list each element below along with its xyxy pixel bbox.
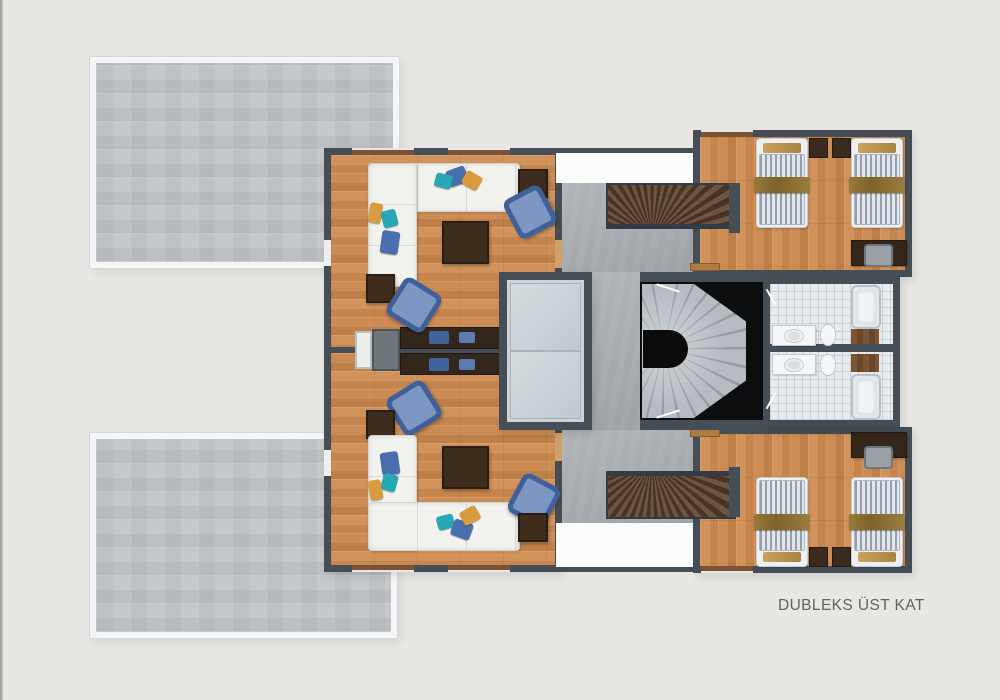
door-opening xyxy=(555,240,562,268)
bed-cushion xyxy=(858,143,896,153)
coffee-table xyxy=(442,446,489,489)
bathtub xyxy=(851,285,881,329)
tv-decor xyxy=(459,332,475,343)
window-sill xyxy=(448,565,510,572)
nightstand xyxy=(809,138,828,158)
cabinet-gray xyxy=(372,329,400,371)
window-sill xyxy=(701,130,753,137)
window-sill xyxy=(352,565,414,572)
page-edge xyxy=(0,0,3,700)
bed-throw xyxy=(849,514,905,530)
vanity-sink xyxy=(772,354,816,375)
tv-console-lower xyxy=(400,353,502,375)
bed xyxy=(851,138,903,228)
window-sill xyxy=(448,148,510,155)
vanity-sink xyxy=(772,325,816,346)
door-threshold xyxy=(690,429,720,437)
bed-throw xyxy=(754,514,810,530)
bed-cushion xyxy=(763,552,801,562)
bed-cushion xyxy=(763,143,801,153)
wall xyxy=(556,567,695,572)
core-wall-bottom xyxy=(640,420,763,430)
nightstand xyxy=(832,547,851,567)
tv-decor xyxy=(459,359,475,370)
roof-void-upper xyxy=(556,153,695,183)
desk-chair xyxy=(864,244,893,267)
duplex-stairs-upper xyxy=(606,183,736,229)
tv-decor xyxy=(429,358,449,371)
window-sill xyxy=(701,566,753,573)
nightstand xyxy=(832,138,851,158)
bathtub xyxy=(851,374,881,420)
bath-counter xyxy=(851,354,879,372)
elevator-panel xyxy=(510,283,581,351)
spiral-core xyxy=(643,330,688,368)
pillow xyxy=(379,451,400,476)
nightstand xyxy=(809,547,828,567)
elevator xyxy=(499,272,592,430)
coffee-table xyxy=(442,221,489,264)
core-landing xyxy=(591,272,640,430)
stair-wall-stub xyxy=(729,183,740,233)
terrace-door xyxy=(324,450,331,476)
door-threshold xyxy=(690,263,720,271)
sink-basin xyxy=(784,358,804,372)
bed xyxy=(756,477,808,567)
toilet xyxy=(820,324,836,346)
stair-wall-stub xyxy=(729,467,740,517)
elevator-panel xyxy=(510,351,581,419)
window-sill xyxy=(352,148,414,155)
bed-throw xyxy=(754,177,810,193)
side-table xyxy=(518,513,548,542)
bed-throw xyxy=(849,177,905,193)
cabinet-white xyxy=(355,331,372,369)
door-opening xyxy=(555,433,562,461)
core-wall-top xyxy=(640,272,763,282)
bed xyxy=(851,477,903,567)
bathtub-basin xyxy=(856,290,876,324)
floor-plan-canvas: DUBLEKS ÜST KAT xyxy=(0,0,1000,700)
bed xyxy=(756,138,808,228)
terrace-door xyxy=(324,240,331,266)
duplex-stairs-lower xyxy=(606,471,736,519)
sink-basin xyxy=(784,329,804,343)
roof-void-lower xyxy=(556,523,695,567)
desk-chair xyxy=(864,446,893,469)
bathtub-basin xyxy=(856,379,876,415)
tv-decor xyxy=(429,331,449,344)
toilet xyxy=(820,354,836,376)
floor-label: DUBLEKS ÜST KAT xyxy=(778,597,925,616)
pillow xyxy=(379,230,400,255)
bath-counter xyxy=(851,329,879,344)
bed-cushion xyxy=(858,552,896,562)
